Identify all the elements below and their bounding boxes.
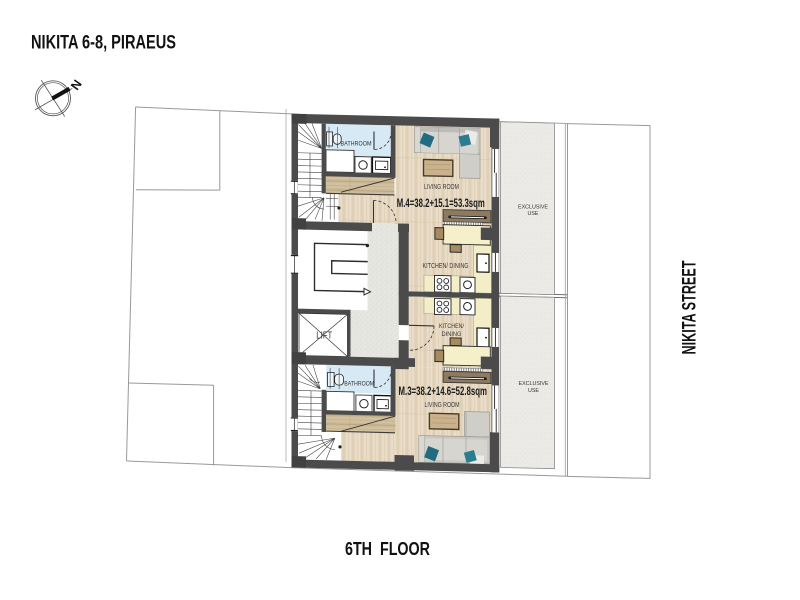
svg-text:DINING: DINING (442, 331, 462, 338)
svg-text:EXCLUSIVE: EXCLUSIVE (519, 381, 549, 387)
svg-text:KITCHEN/ DINING: KITCHEN/ DINING (423, 263, 469, 270)
svg-text:6TH FLOOR: 6TH FLOOR (345, 538, 430, 559)
svg-text:USE: USE (528, 211, 539, 217)
svg-text:BATHROOM: BATHROOM (344, 381, 374, 388)
svg-text:LIVING ROOM: LIVING ROOM (425, 400, 460, 409)
svg-text:NIKITA STREET: NIKITA STREET (680, 260, 701, 354)
svg-text:M.4=38.2+15.1=53.3sqm: M.4=38.2+15.1=53.3sqm (397, 196, 485, 210)
svg-text:USE: USE (528, 388, 539, 394)
svg-text:NIKITA 6-8, PIRAEUS: NIKITA 6-8, PIRAEUS (31, 33, 176, 54)
svg-text:KITCHEN/: KITCHEN/ (439, 323, 464, 330)
svg-text:M.3=38.2+14.6=52.8sqm: M.3=38.2+14.6=52.8sqm (399, 384, 488, 398)
svg-text:LIFT: LIFT (316, 330, 332, 341)
svg-text:BATHROOM: BATHROOM (341, 141, 372, 148)
svg-text:LIVING ROOM: LIVING ROOM (424, 182, 459, 191)
svg-text:EXCLUSIVE: EXCLUSIVE (518, 205, 548, 211)
